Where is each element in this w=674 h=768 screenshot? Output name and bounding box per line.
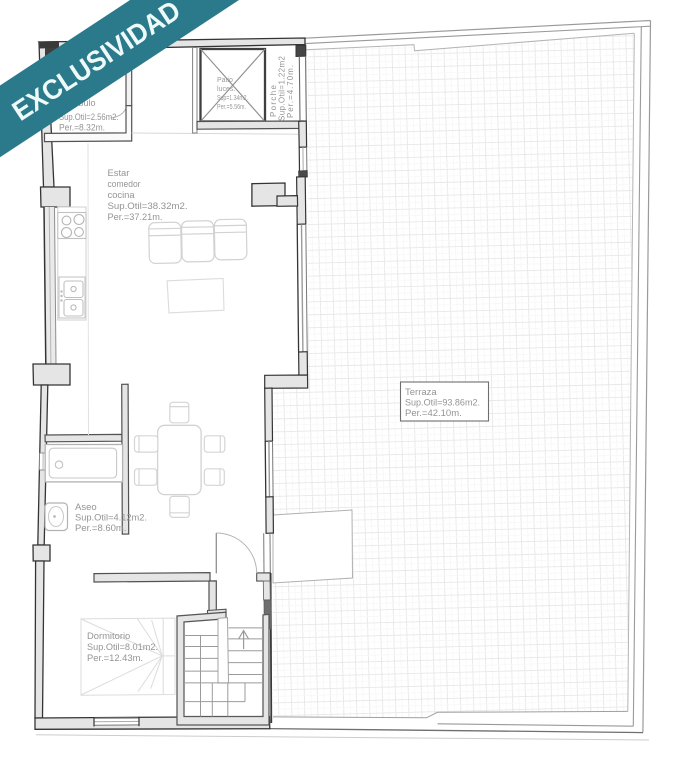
svg-text:Sup.Otil=38.32m2.: Sup.Otil=38.32m2. — [108, 200, 188, 211]
svg-text:Sup.Otil=8.01m2.: Sup.Otil=8.01m2. — [87, 641, 158, 652]
svg-text:Per.=5.56m.: Per.=5.56m. — [217, 104, 246, 111]
svg-text:Per.=37.21m.: Per.=37.21m. — [108, 211, 163, 222]
svg-text:EXCLUSIVIDAD: EXCLUSIVIDAD — [7, 0, 186, 127]
svg-text:Per.=8.60m.: Per.=8.60m. — [75, 523, 127, 534]
svg-text:Sup=1.34m2.: Sup=1.34m2. — [217, 95, 248, 102]
svg-text:comedor: comedor — [108, 178, 141, 189]
svg-text:cocina: cocina — [108, 189, 136, 200]
svg-text:Per.=42.10m.: Per.=42.10m. — [405, 408, 462, 419]
svg-text:Aseo: Aseo — [75, 502, 97, 513]
svg-text:Sup.Otil=93.86m2.: Sup.Otil=93.86m2. — [405, 398, 480, 409]
svg-text:Sup.Otil=4.12m2.: Sup.Otil=4.12m2. — [75, 513, 147, 524]
svg-text:Dormitorio: Dormitorio — [87, 630, 130, 641]
svg-text:Sup.Otil=2.56m2.: Sup.Otil=2.56m2. — [59, 112, 119, 122]
svg-text:Patio: Patio — [217, 77, 233, 84]
svg-text:Estar: Estar — [108, 167, 130, 178]
svg-text:Per.=4.70m.: Per.=4.70m. — [286, 65, 295, 118]
svg-text:Per.=8.32m.: Per.=8.32m. — [59, 123, 105, 133]
svg-text:Per.=12.43m.: Per.=12.43m. — [87, 652, 143, 663]
svg-text:Terraza: Terraza — [405, 387, 437, 398]
svg-text:luces.: luces. — [217, 86, 235, 93]
